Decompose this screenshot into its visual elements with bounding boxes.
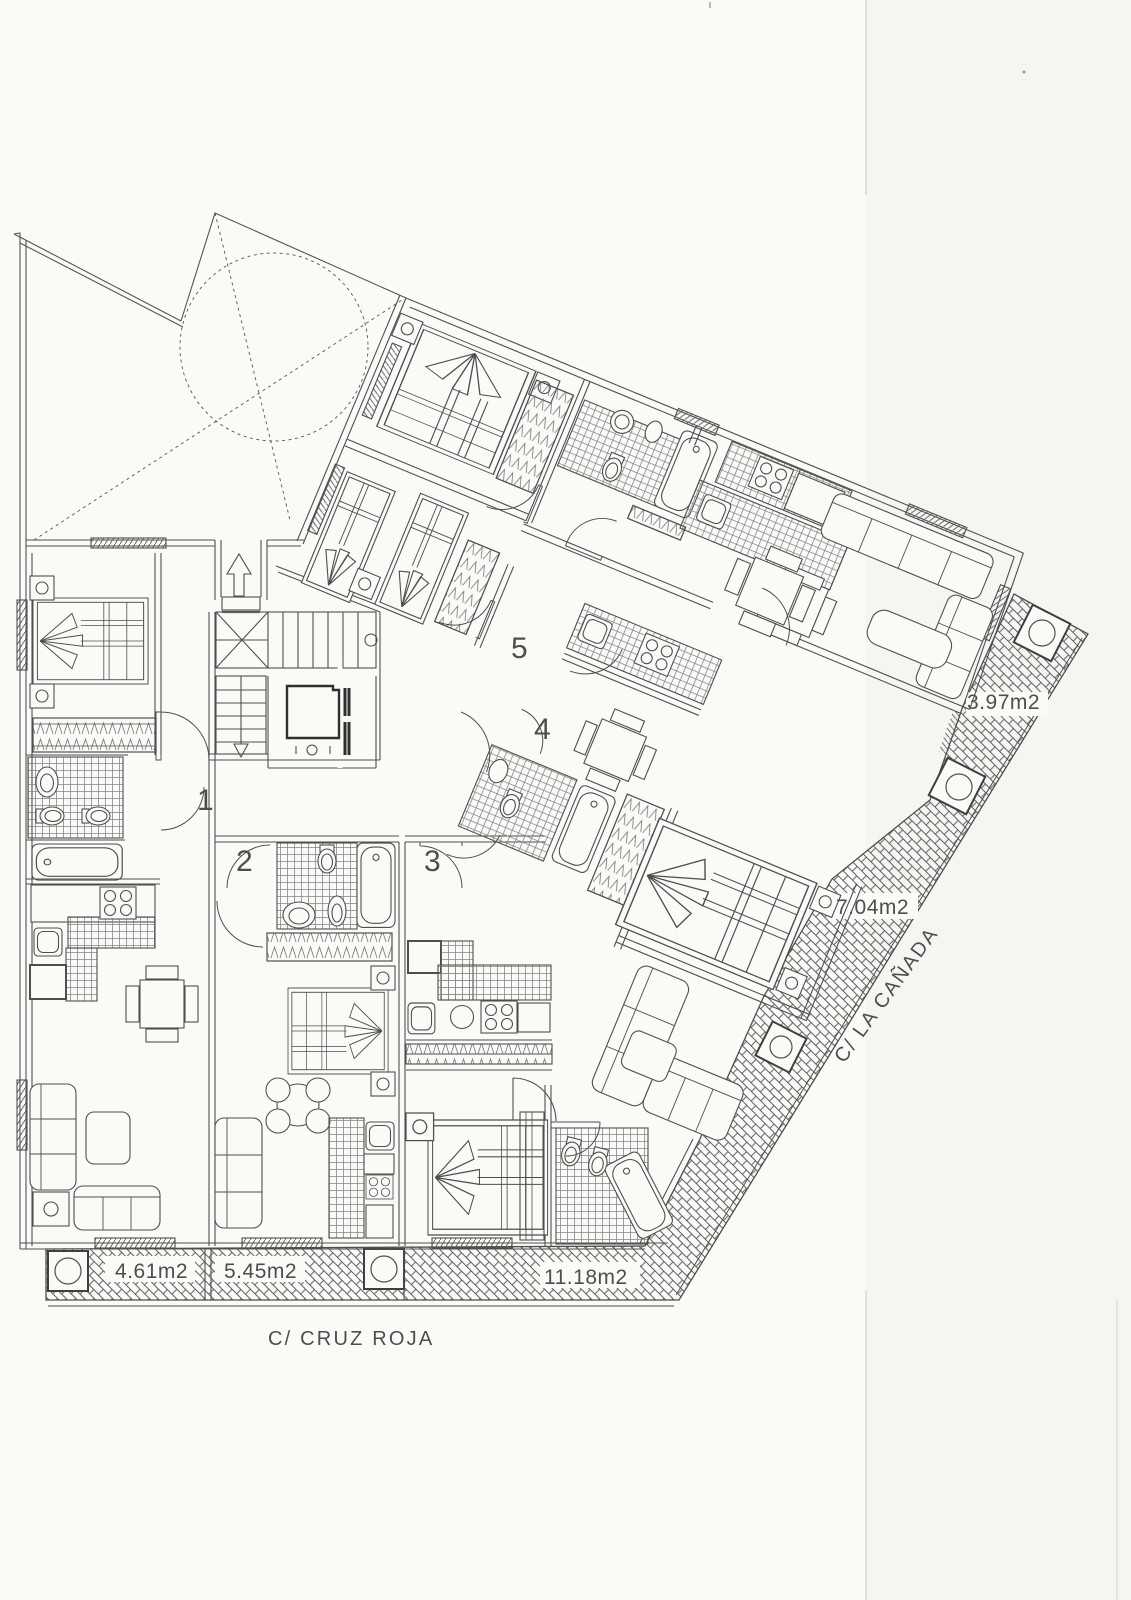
svg-text:7.04m2: 7.04m2 [836, 896, 909, 919]
svg-text:11.18m2: 11.18m2 [544, 1266, 628, 1289]
svg-text:4: 4 [534, 713, 551, 746]
svg-text:5: 5 [511, 632, 528, 665]
svg-text:1: 1 [197, 784, 214, 817]
svg-text:2: 2 [236, 845, 253, 878]
svg-text:5.45m2: 5.45m2 [224, 1260, 297, 1283]
svg-text:4.61m2: 4.61m2 [115, 1260, 188, 1283]
svg-text:3.97m2: 3.97m2 [967, 691, 1040, 714]
svg-text:3: 3 [424, 845, 441, 878]
svg-text:C/ CRUZ ROJA: C/ CRUZ ROJA [268, 1328, 434, 1350]
